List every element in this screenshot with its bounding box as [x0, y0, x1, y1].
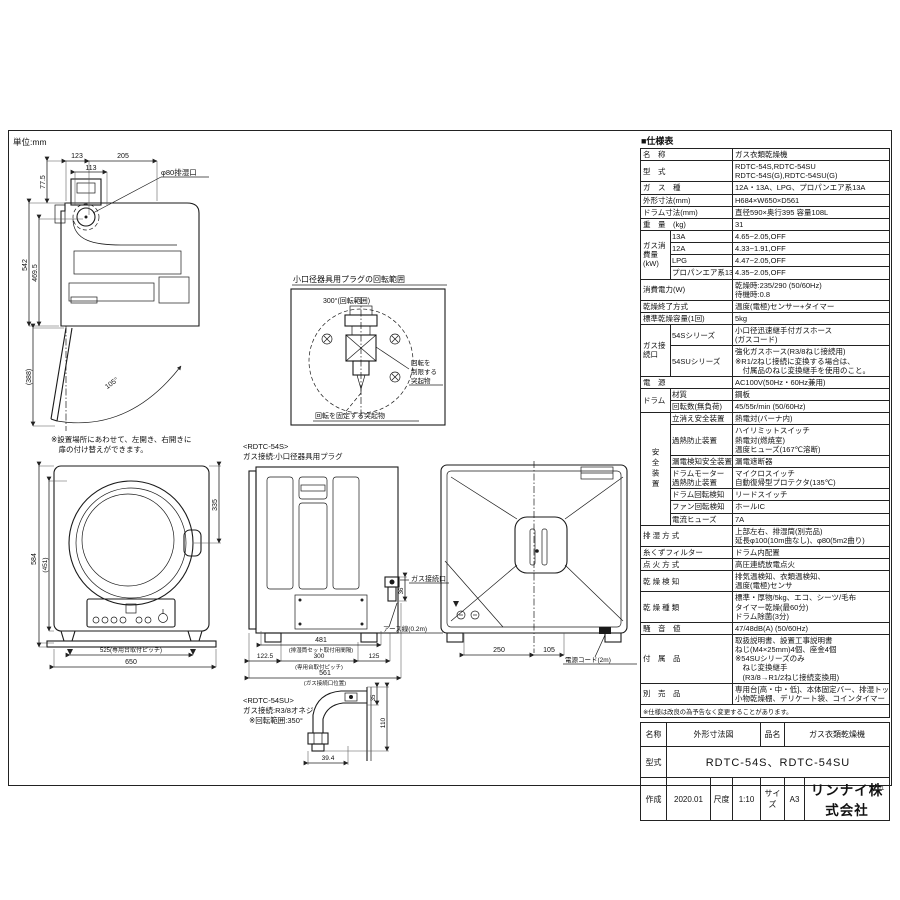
- spec-row-accessories: 付 属 品 取扱説明書、設置工事説明書 ねじ(M4×25mm)4個、座金4個 ※…: [641, 635, 890, 684]
- dim-113: 113: [85, 165, 96, 172]
- spec-value: 熱電対(バーナ内): [733, 413, 890, 425]
- spec-row-gas-connection: 54SUシリーズ 強化ガスホース(R3/8ねじ接続用) ※R1/2ねじ接続に変換…: [641, 346, 890, 376]
- spec-sublabel: 54Sシリーズ: [671, 325, 733, 346]
- plug-rotation-diagram: 小口径器具用プラグの回転範囲 300°(回転範囲: [291, 274, 447, 425]
- dim-122-5: 122.5: [257, 653, 274, 660]
- svg-text:突起物: 突起物: [411, 376, 431, 385]
- title-block-size-label: サイズ: [761, 778, 785, 821]
- spec-value: ドラム内配置: [733, 546, 890, 558]
- title-block-model-label: 型式: [641, 747, 667, 778]
- spec-change-note: ※仕様は改良の為予告なく変更することがあります。: [640, 705, 890, 718]
- title-block-scale-value: 1:10: [733, 778, 761, 821]
- spec-value: AC100V(50Hz・60Hz兼用): [733, 376, 890, 388]
- spec-label: 外形寸法(mm): [641, 194, 733, 206]
- spec-label: 消費電力(W): [641, 279, 733, 300]
- spec-row-dry-end: 乾燥終了方式 温度(電極)センサー+タイマー: [641, 300, 890, 312]
- spec-sublabel: 12A: [671, 243, 733, 255]
- dim-561-note: (ガス接続口位置): [304, 679, 346, 687]
- control-panel-knobs: [93, 609, 168, 623]
- spec-label: 点 火 方 式: [641, 559, 733, 571]
- title-block-scale-label: 尺度: [711, 778, 733, 821]
- title-block-name-label: 名称: [641, 723, 667, 747]
- gas-side-view-drawing: <RDTC-54S> ガス接続:小口径器具用プラグ: [243, 442, 449, 687]
- spec-value: 4.65~2.05,OFF: [733, 230, 890, 242]
- gas-connection-subtitle: ガス接続:小口径器具用プラグ: [243, 451, 343, 461]
- svg-text:制限する: 制限する: [411, 367, 437, 376]
- panel-screws: [299, 599, 364, 626]
- spec-label: 名 称: [641, 149, 733, 161]
- spec-label: 標準乾燥容量(1回): [641, 312, 733, 324]
- dim-584: 584: [31, 553, 38, 565]
- spec-label: 乾 燥 検 知: [641, 571, 733, 592]
- exhaust-port-label: φ80排湿口: [161, 167, 197, 177]
- title-block-item-label: 品名: [761, 723, 785, 747]
- dim-205: 205: [117, 153, 129, 160]
- dim-469-5: 469.5: [32, 264, 39, 282]
- spec-row-gas-connection: ガス接続口 54Sシリーズ 小口径迅速継手付ガスホース (ガスコード): [641, 325, 890, 346]
- rotation-range-label: 300°(回転範囲): [323, 296, 370, 305]
- spec-value: 4.35~2.05,OFF: [733, 267, 890, 279]
- model-54su-label: <RDTC-54SU>: [243, 696, 294, 705]
- spec-row-optional: 別 売 品 専用台[高・中・低]、本体固定バー、排湿トップ 小物乾燥棚、デリケー…: [641, 683, 890, 704]
- spec-label: 安全装置: [641, 413, 671, 525]
- fix-protrusion-label: 回転を固定する突起物: [315, 411, 385, 420]
- spec-row-ignition: 点 火 方 式 高圧連続放電点火: [641, 559, 890, 571]
- spec-sublabel: ファン回転検知: [671, 501, 733, 513]
- page-mark: 1/1: [876, 786, 884, 792]
- gas-plug: [385, 577, 399, 601]
- spec-row-safety: 漏電検知安全装置 漏電遮断器: [641, 455, 890, 467]
- title-block-created-value: 2020.01: [667, 778, 711, 821]
- spec-label: 型 式: [641, 161, 733, 182]
- spec-row-name: 名 称 ガス衣類乾燥機: [641, 149, 890, 161]
- spec-row-noise: 騒 音 値 47/48dB(A) (50/60Hz): [641, 622, 890, 634]
- drawing-sheet: 単位:mm: [8, 130, 892, 786]
- spec-value: 上部左右、排湿筒(別売品) 延長φ100(10m曲なし)、φ80(5m2曲り): [733, 525, 890, 546]
- spec-row-model: 型 式 RDTC-54S,RDTC-54SU RDTC-54S(G),RDTC-…: [641, 161, 890, 182]
- spec-label: 排 湿 方 式: [641, 525, 733, 546]
- spec-sublabel: ドラムモーター 過熱防止装置: [671, 467, 733, 488]
- spec-value: 45/55r/min (50/60Hz): [733, 401, 890, 413]
- spec-row-gas-consumption: プロパンエア系13A 4.35~2.05,OFF: [641, 267, 890, 279]
- spec-panel: ■仕様表 名 称 ガス衣類乾燥機 型 式 RDTC-54S,RDTC-54SU …: [639, 131, 891, 785]
- spec-label: 乾燥終了方式: [641, 300, 733, 312]
- plug-rotation-title: 小口径器具用プラグの回転範囲: [293, 274, 405, 284]
- spec-row-power-supply: 電 源 AC100V(50Hz・60Hz兼用): [641, 376, 890, 388]
- spec-row-detect: 乾 燥 検 知 排気温検知、衣類温検知、 温度(電極)センサ: [641, 571, 890, 592]
- spec-value: 乾燥時:235/290 (50/60Hz) 待機時:0.8: [733, 279, 890, 300]
- spec-value: 直径590×奥行395 容量108L: [733, 206, 890, 218]
- spec-label: 付 属 品: [641, 635, 733, 684]
- title-block-name-value: 外形寸法図: [667, 723, 761, 747]
- spec-label: 乾 燥 種 類: [641, 592, 733, 622]
- spec-sublabel: 回転数(無負荷): [671, 401, 733, 413]
- fitting-detail-drawing: <RDTC-54SU> ガス接続:R3/8オネジ ※回転範囲:350° 39.4: [243, 687, 389, 765]
- spec-sublabel: 電流ヒューズ: [671, 513, 733, 525]
- spec-row-gas-consumption: 12A 4.33~1.91,OFF: [641, 243, 890, 255]
- dim-35: 35: [371, 694, 377, 701]
- title-block-created-label: 作成: [641, 778, 667, 821]
- rear-view-drawing: 250 105 電源コード(2m): [441, 461, 637, 664]
- dim-650: 650: [125, 659, 137, 666]
- spec-sublabel: 材質: [671, 388, 733, 400]
- spec-sublabel: 過熱防止装置: [671, 425, 733, 455]
- spec-value: 高圧連続放電点火: [733, 559, 890, 571]
- spec-row-safety: ドラムモーター 過熱防止装置 マイクロスイッチ 自動復帰型プロテクタ(135℃): [641, 467, 890, 488]
- spec-value: 強化ガスホース(R3/8ねじ接続用) ※R1/2ねじ接続に変換する場合は、 付属…: [733, 346, 890, 376]
- front-view-drawing: 584 (451) 335 525(専用台取付ピッチ) 650: [31, 466, 221, 667]
- title-block-item-value: ガス衣類乾燥機: [785, 723, 890, 747]
- spec-value: 5kg: [733, 312, 890, 324]
- spec-value: 47/48dB(A) (50/60Hz): [733, 622, 890, 634]
- spec-sublabel: 54SUシリーズ: [671, 346, 733, 376]
- spec-value: マイクロスイッチ 自動復帰型プロテクタ(135℃): [733, 467, 890, 488]
- dim-451: (451): [42, 557, 49, 572]
- dim-105: 105: [543, 647, 555, 654]
- spec-value: 7A: [733, 513, 890, 525]
- spec-value: 小口径迅速継手付ガスホース (ガスコード): [733, 325, 890, 346]
- spec-row-exhaust: 排 湿 方 式 上部左右、排湿筒(別売品) 延長φ100(10m曲なし)、φ80…: [641, 525, 890, 546]
- spec-row-safety: ファン回転検知 ホールIC: [641, 501, 890, 513]
- spec-label: ガス消費量(kW): [641, 230, 671, 279]
- spec-value: 専用台[高・中・低]、本体固定バー、排湿トップ 小物乾燥棚、デリケート袋、コイン…: [733, 683, 890, 704]
- spec-table: 名 称 ガス衣類乾燥機 型 式 RDTC-54S,RDTC-54SU RDTC-…: [640, 148, 890, 705]
- spec-label: 別 売 品: [641, 683, 733, 704]
- spec-row-safety: ドラム回転検知 リードスイッチ: [641, 489, 890, 501]
- spec-row-capacity: 標準乾燥容量(1回) 5kg: [641, 312, 890, 324]
- spec-row-safety: 安全装置 立消え安全装置 熱電対(バーナ内): [641, 413, 890, 425]
- spec-value: 鋼板: [733, 388, 890, 400]
- spec-row-modes: 乾 燥 種 類 標準・厚物/5kg、エコ、シーツ/毛布 タイマー乾燥(最60分)…: [641, 592, 890, 622]
- spec-row-dimensions: 外形寸法(mm) H684×W650×D561: [641, 194, 890, 206]
- spec-value: 漏電遮断器: [733, 455, 890, 467]
- dim-250: 250: [493, 647, 505, 654]
- spec-sublabel: プロパンエア系13A: [671, 267, 733, 279]
- drawing-sheet-canvas: 単位:mm: [0, 0, 900, 900]
- door-note-line2: 扉の付け替えができます。: [51, 444, 148, 454]
- dim-125: 125: [369, 653, 380, 660]
- dim-39-4: 39.4: [322, 755, 335, 762]
- power-cord-label: 電源コード(2m): [565, 655, 611, 664]
- spec-label: 電 源: [641, 376, 733, 388]
- spec-row-weight: 重 量 (kg) 31: [641, 218, 890, 230]
- spec-row-drum: ドラム 材質 鋼板: [641, 388, 890, 400]
- dim-123: 123: [71, 153, 83, 160]
- spec-label: ドラム寸法(mm): [641, 206, 733, 218]
- spec-label: ガス接続口: [641, 325, 671, 377]
- spec-label: ドラム: [641, 388, 671, 412]
- spec-row-gas-type: ガ ス 種 12A・13A、LPG、プロパンエア系13A: [641, 182, 890, 194]
- spec-sublabel: 漏電検知安全装置: [671, 455, 733, 467]
- side-view-drawing: 123 205 113 77.5 542 469.5 (388) 105° φ8…: [22, 153, 209, 643]
- spec-value: 温度(電極)センサー+タイマー: [733, 300, 890, 312]
- title-block-size-value: A3: [785, 778, 805, 821]
- dimension-drawings: 単位:mm: [9, 131, 639, 785]
- spec-value: 4.33~1.91,OFF: [733, 243, 890, 255]
- spec-label: ガ ス 種: [641, 182, 733, 194]
- spec-row-drum-dim: ドラム寸法(mm) 直径590×奥行395 容量108L: [641, 206, 890, 218]
- company-name: リンナイ株式会社: [805, 778, 890, 821]
- door-note-line1: ※設置場所にあわせて、左開き、右開きに: [51, 434, 191, 444]
- fitting-rotation-note: ※回転範囲:350°: [249, 715, 303, 725]
- spec-value: リードスイッチ: [733, 489, 890, 501]
- title-block-model-value: RDTC-54S、RDTC-54SU: [667, 747, 890, 778]
- spec-value: ハイリミットスイッチ 熱電対(燃焼室) 温度ヒューズ(167℃溶断): [733, 425, 890, 455]
- spec-value: 取扱説明書、設置工事説明書 ねじ(M4×25mm)4個、座金4個 ※54SUシリ…: [733, 635, 890, 684]
- model-54s-label: <RDTC-54S>: [243, 442, 289, 451]
- spec-sublabel: LPG: [671, 255, 733, 267]
- spec-table-title: ■仕様表: [639, 131, 891, 148]
- spec-row-gas-consumption: ガス消費量(kW) 13A 4.65~2.05,OFF: [641, 230, 890, 242]
- title-block: 名称 外形寸法図 品名 ガス衣類乾燥機 型式 RDTC-54S、RDTC-54S…: [640, 722, 890, 821]
- dim-110: 110: [380, 717, 387, 728]
- limit-protrusion-label: 回転を: [411, 359, 431, 367]
- dim-542: 542: [22, 259, 29, 271]
- spec-sublabel: 立消え安全装置: [671, 413, 733, 425]
- spec-value: ホールIC: [733, 501, 890, 513]
- dim-525-stand-pitch: 525(専用台取付ピッチ): [100, 646, 162, 654]
- spec-label: 騒 音 値: [641, 622, 733, 634]
- spec-value: 標準・厚物/5kg、エコ、シーツ/毛布 タイマー乾燥(最60分) ドラム除菌(3…: [733, 592, 890, 622]
- dim-561: 561: [319, 670, 331, 677]
- dim-300: 300: [314, 653, 325, 660]
- spec-value: 31: [733, 218, 890, 230]
- spec-row-gas-consumption: LPG 4.47~2.05,OFF: [641, 255, 890, 267]
- fitting-subtitle: ガス接続:R3/8オネジ: [243, 705, 314, 715]
- spec-value: 排気温検知、衣類温検知、 温度(電極)センサ: [733, 571, 890, 592]
- spec-value: 12A・13A、LPG、プロパンエア系13A: [733, 182, 890, 194]
- dim-388: (388): [26, 369, 33, 385]
- spec-label: 重 量 (kg): [641, 218, 733, 230]
- spec-sublabel: 13A: [671, 230, 733, 242]
- spec-value: RDTC-54S,RDTC-54SU RDTC-54S(G),RDTC-54SU…: [733, 161, 890, 182]
- spec-value: 4.47~2.05,OFF: [733, 255, 890, 267]
- spec-row-safety: 電流ヒューズ 7A: [641, 513, 890, 525]
- spec-label: 糸くずフィルター: [641, 546, 733, 558]
- earth-wire-label: アース線(0.2m): [383, 624, 427, 633]
- spec-row-safety: 過熱防止装置 ハイリミットスイッチ 熱電対(燃焼室) 温度ヒューズ(167℃溶断…: [641, 425, 890, 455]
- unit-note: 単位:mm: [13, 137, 47, 147]
- spec-row-power: 消費電力(W) 乾燥時:235/290 (50/60Hz) 待機時:0.8: [641, 279, 890, 300]
- spec-row-drum: 回転数(無負荷) 45/55r/min (50/60Hz): [641, 401, 890, 413]
- door-angle: 105°: [104, 376, 121, 391]
- dim-481: 481: [315, 637, 327, 644]
- spec-row-filter: 糸くずフィルター ドラム内配置: [641, 546, 890, 558]
- spec-sublabel: ドラム回転検知: [671, 489, 733, 501]
- dim-335: 335: [212, 499, 219, 511]
- dim-77-5: 77.5: [40, 175, 47, 189]
- spec-value: ガス衣類乾燥機: [733, 149, 890, 161]
- spec-value: H684×W650×D561: [733, 194, 890, 206]
- dim-36: 36: [399, 587, 405, 594]
